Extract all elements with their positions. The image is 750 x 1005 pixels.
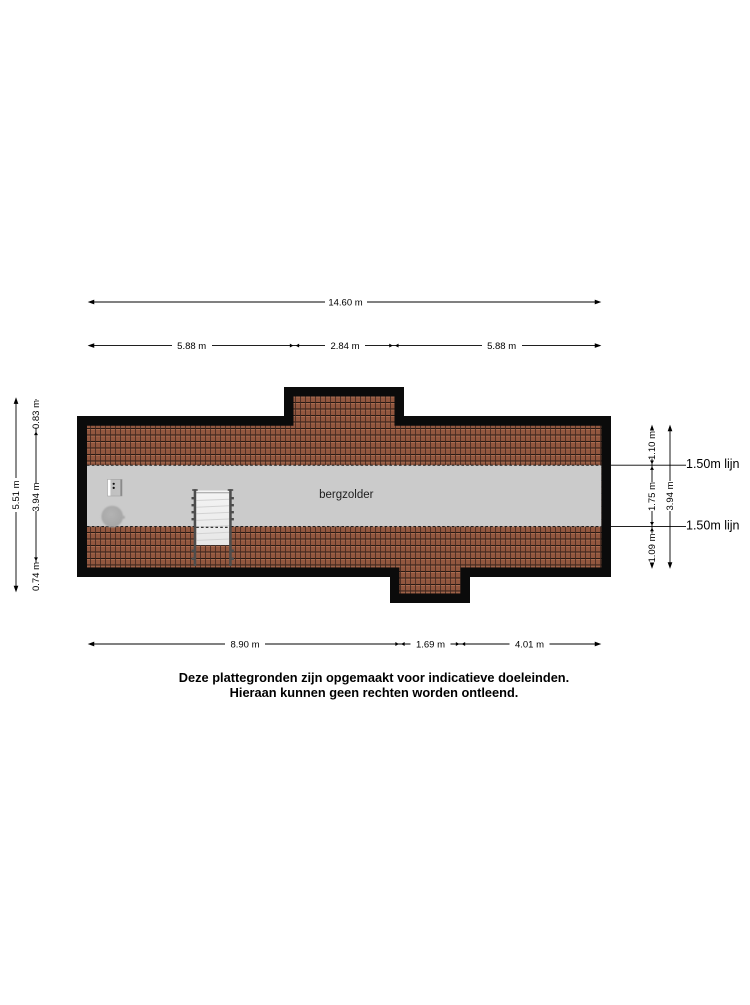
svg-text:1.75 m: 1.75 m (647, 482, 658, 511)
svg-text:bergzolder: bergzolder (319, 489, 374, 501)
svg-text:5.51 m: 5.51 m (11, 480, 22, 509)
svg-text:5.88 m: 5.88 m (487, 341, 516, 352)
svg-text:1.09 m: 1.09 m (647, 533, 658, 562)
svg-text:2.84 m: 2.84 m (330, 341, 359, 352)
svg-text:1.50m lijn: 1.50m lijn (686, 519, 740, 533)
svg-text:0.83 m: 0.83 m (31, 400, 42, 429)
svg-text:3.94 m: 3.94 m (31, 482, 42, 511)
svg-text:0.74 m: 0.74 m (31, 562, 42, 591)
svg-text:1.50m lijn: 1.50m lijn (686, 457, 740, 471)
svg-text:3.94 m: 3.94 m (665, 481, 676, 510)
svg-text:1.10 m: 1.10 m (647, 431, 658, 460)
svg-text:Hieraan kunnen geen rechten wo: Hieraan kunnen geen rechten worden ontle… (230, 685, 519, 700)
svg-text:14.60 m: 14.60 m (328, 298, 362, 309)
svg-text:1.69 m: 1.69 m (416, 640, 445, 651)
svg-text:Deze plattegronden zijn opgema: Deze plattegronden zijn opgemaakt voor i… (179, 670, 569, 685)
svg-text:5.88 m: 5.88 m (177, 341, 206, 352)
svg-text:8.90 m: 8.90 m (230, 640, 259, 651)
svg-text:4.01 m: 4.01 m (515, 640, 544, 651)
